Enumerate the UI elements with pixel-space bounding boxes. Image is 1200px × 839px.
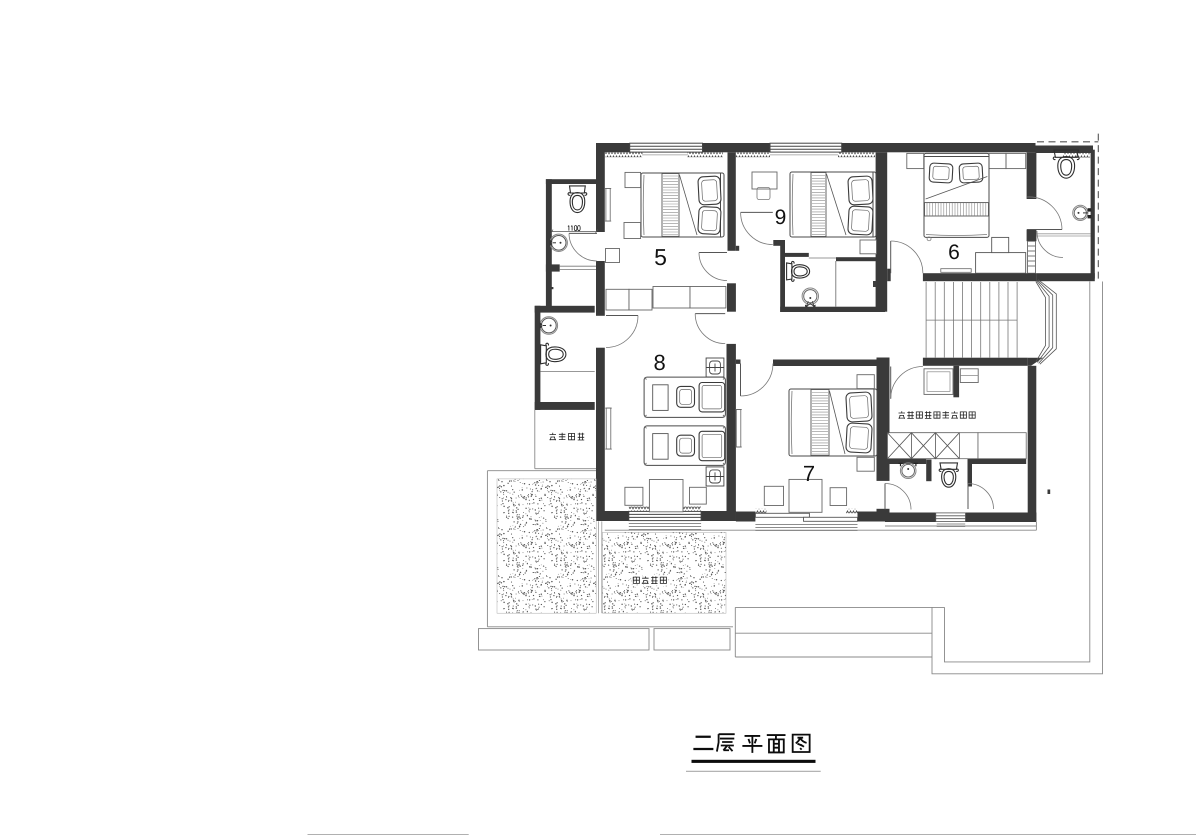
svg-text:7: 7 bbox=[803, 461, 815, 486]
svg-text:8: 8 bbox=[653, 350, 665, 375]
svg-text:5: 5 bbox=[654, 244, 667, 270]
svg-text:6: 6 bbox=[948, 241, 960, 264]
svg-text:9: 9 bbox=[775, 206, 787, 229]
